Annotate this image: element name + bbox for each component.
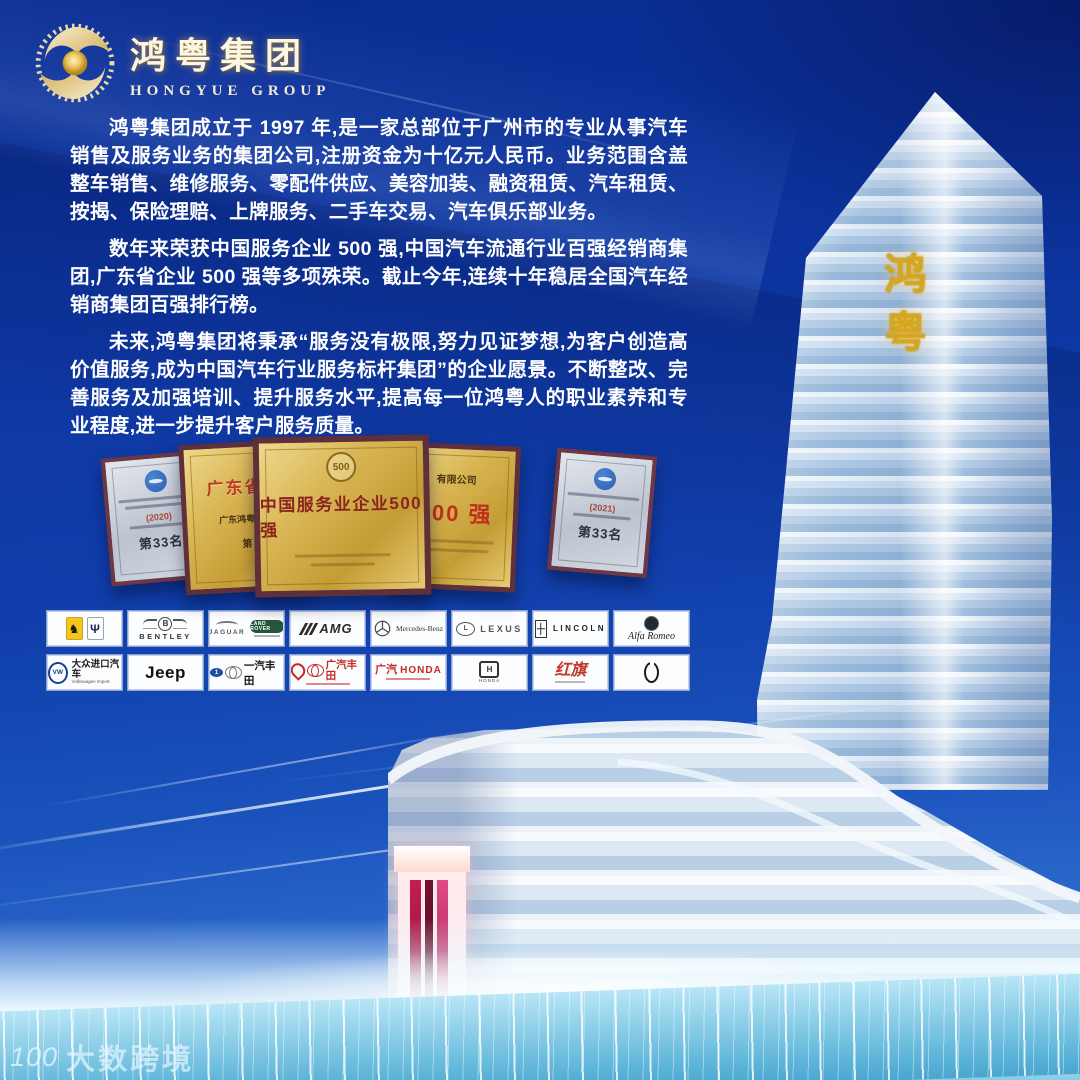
bentley-b-icon: B	[158, 617, 172, 631]
land-rover-oval-icon: LAND ROVER	[250, 620, 284, 633]
alfa-romeo-label: Alfa Romeo	[628, 632, 675, 642]
company-name-cn: 鸿粤集团	[130, 27, 330, 79]
alfa-romeo-emblem-icon	[644, 616, 659, 631]
intro-paragraph-1: 鸿粤集团成立于 1997 年,是一家总部位于广州市的专业从事汽车销售及服务业务的…	[70, 114, 688, 226]
bentley-label: BENTLEY	[139, 633, 192, 641]
plaque-inner-border	[265, 447, 419, 586]
brand-cell-ferrari-maserati: ♞ Ψ	[47, 611, 122, 646]
bentley-wing-icon	[143, 619, 157, 629]
lexus-label: LEXUS	[480, 624, 523, 634]
brand-cell-oval-emblem	[614, 655, 689, 690]
ferrari-shield-icon: ♞	[66, 617, 83, 640]
watermark: 100 大数跨境	[10, 1036, 194, 1078]
hongqi-subtext-line	[555, 681, 585, 683]
gac-honda-subtext-line	[386, 678, 430, 680]
brand-cell-lincoln: LINCOLN	[533, 611, 608, 646]
brand-cell-faw-toyota: 1 一汽丰田	[209, 655, 284, 690]
lincoln-cross-icon	[535, 620, 547, 638]
gac-emblem-icon	[290, 660, 308, 681]
brand-cell-alfa-romeo: Alfa Romeo	[614, 611, 689, 646]
brand-cell-amg: AMG	[290, 611, 365, 646]
vw-label-en: Volkswagen Import	[72, 680, 110, 685]
vw-label-cn: 大众进口汽车	[72, 660, 121, 679]
jeep-label: Jeep	[145, 663, 186, 683]
honda-label: HONDA	[479, 679, 500, 684]
brand-cell-jeep: Jeep	[128, 655, 203, 690]
gac-honda-label-en: HONDA	[400, 666, 442, 676]
brand-cell-gac-toyota: 广汽丰田	[290, 655, 365, 690]
faw-toyota-label: 一汽丰田	[244, 658, 283, 688]
watermark-text: 大数跨境	[66, 1036, 194, 1078]
brand-cell-jaguar-landrover: JAGUAR LAND ROVER	[209, 611, 284, 646]
poster: 鸿粤	[0, 0, 1080, 1080]
company-intro: 鸿粤集团成立于 1997 年,是一家总部位于广州市的专业从事汽车销售及服务业务的…	[70, 114, 688, 449]
intro-paragraph-3: 未来,鸿粤集团将秉承“服务没有极限,努力见证梦想,为客户创造高价值服务,成为中国…	[70, 328, 688, 440]
vertical-oval-emblem-icon	[644, 662, 659, 683]
entrance-canopy	[394, 846, 470, 872]
brand-cell-bentley: B BENTLEY	[128, 611, 203, 646]
faw-emblem-icon: 1	[210, 668, 223, 677]
tower-sign: 鸿粤	[872, 252, 933, 368]
brand-cell-gac-honda: 广汽 HONDA	[371, 655, 446, 690]
dealer-brand-grid: ♞ Ψ B BENTLEY JAGUAR LAND RO	[47, 611, 689, 690]
hongqi-label: 红旗	[554, 663, 586, 679]
mercedes-star-icon	[374, 620, 391, 637]
vw-roundel-icon: VW	[48, 662, 68, 684]
brand-cell-mercedes: Mercedes-Benz	[371, 611, 446, 646]
brand-cell-vw-import: VW 大众进口汽车 Volkswagen Import	[47, 655, 122, 690]
intro-paragraph-2: 数年来荣获中国服务企业 500 强,中国汽车流通行业百强经销商集团,广东省企业 …	[70, 235, 688, 319]
lincoln-label: LINCOLN	[553, 624, 606, 633]
gac-toyota-label: 广汽丰田	[326, 660, 364, 681]
jaguar-cat-icon	[216, 621, 238, 629]
bentley-wing-icon	[173, 619, 187, 629]
honda-h-icon: H	[479, 661, 499, 678]
land-rover-subtext-line	[254, 635, 280, 637]
brand-cell-honda: H HONDA	[452, 655, 527, 690]
brand-cell-lexus: L LEXUS	[452, 611, 527, 646]
hongyue-emblem-icon	[34, 22, 116, 104]
jaguar-label: JAGUAR	[209, 630, 245, 637]
toyota-ellipses-icon	[307, 664, 324, 677]
award-plaque-2021: (2021) 第33名	[547, 448, 657, 578]
gac-toyota-subtext-line	[306, 683, 350, 685]
amg-label: AMG	[319, 621, 352, 636]
gac-honda-label-cn: 广汽	[375, 665, 397, 676]
award-plaques: (2020) 第33名 广东省百 广东鸿粤汽车 第 500 中国服务业企业500…	[100, 436, 662, 616]
lexus-l-icon: L	[456, 622, 475, 636]
award-plaque-china-service-500: 500 中国服务业企业500强	[253, 434, 432, 597]
company-name-en: HONGYUE GROUP	[130, 83, 330, 100]
toyota-ellipses-icon	[225, 666, 242, 679]
maserati-trident-icon: Ψ	[87, 617, 104, 640]
mercedes-label: Mercedes-Benz	[396, 624, 443, 633]
logo-block: 鸿粤集团 HONGYUE GROUP	[34, 22, 330, 104]
brand-cell-hongqi: 红旗	[533, 655, 608, 690]
watermark-logo: 100	[10, 1042, 58, 1073]
